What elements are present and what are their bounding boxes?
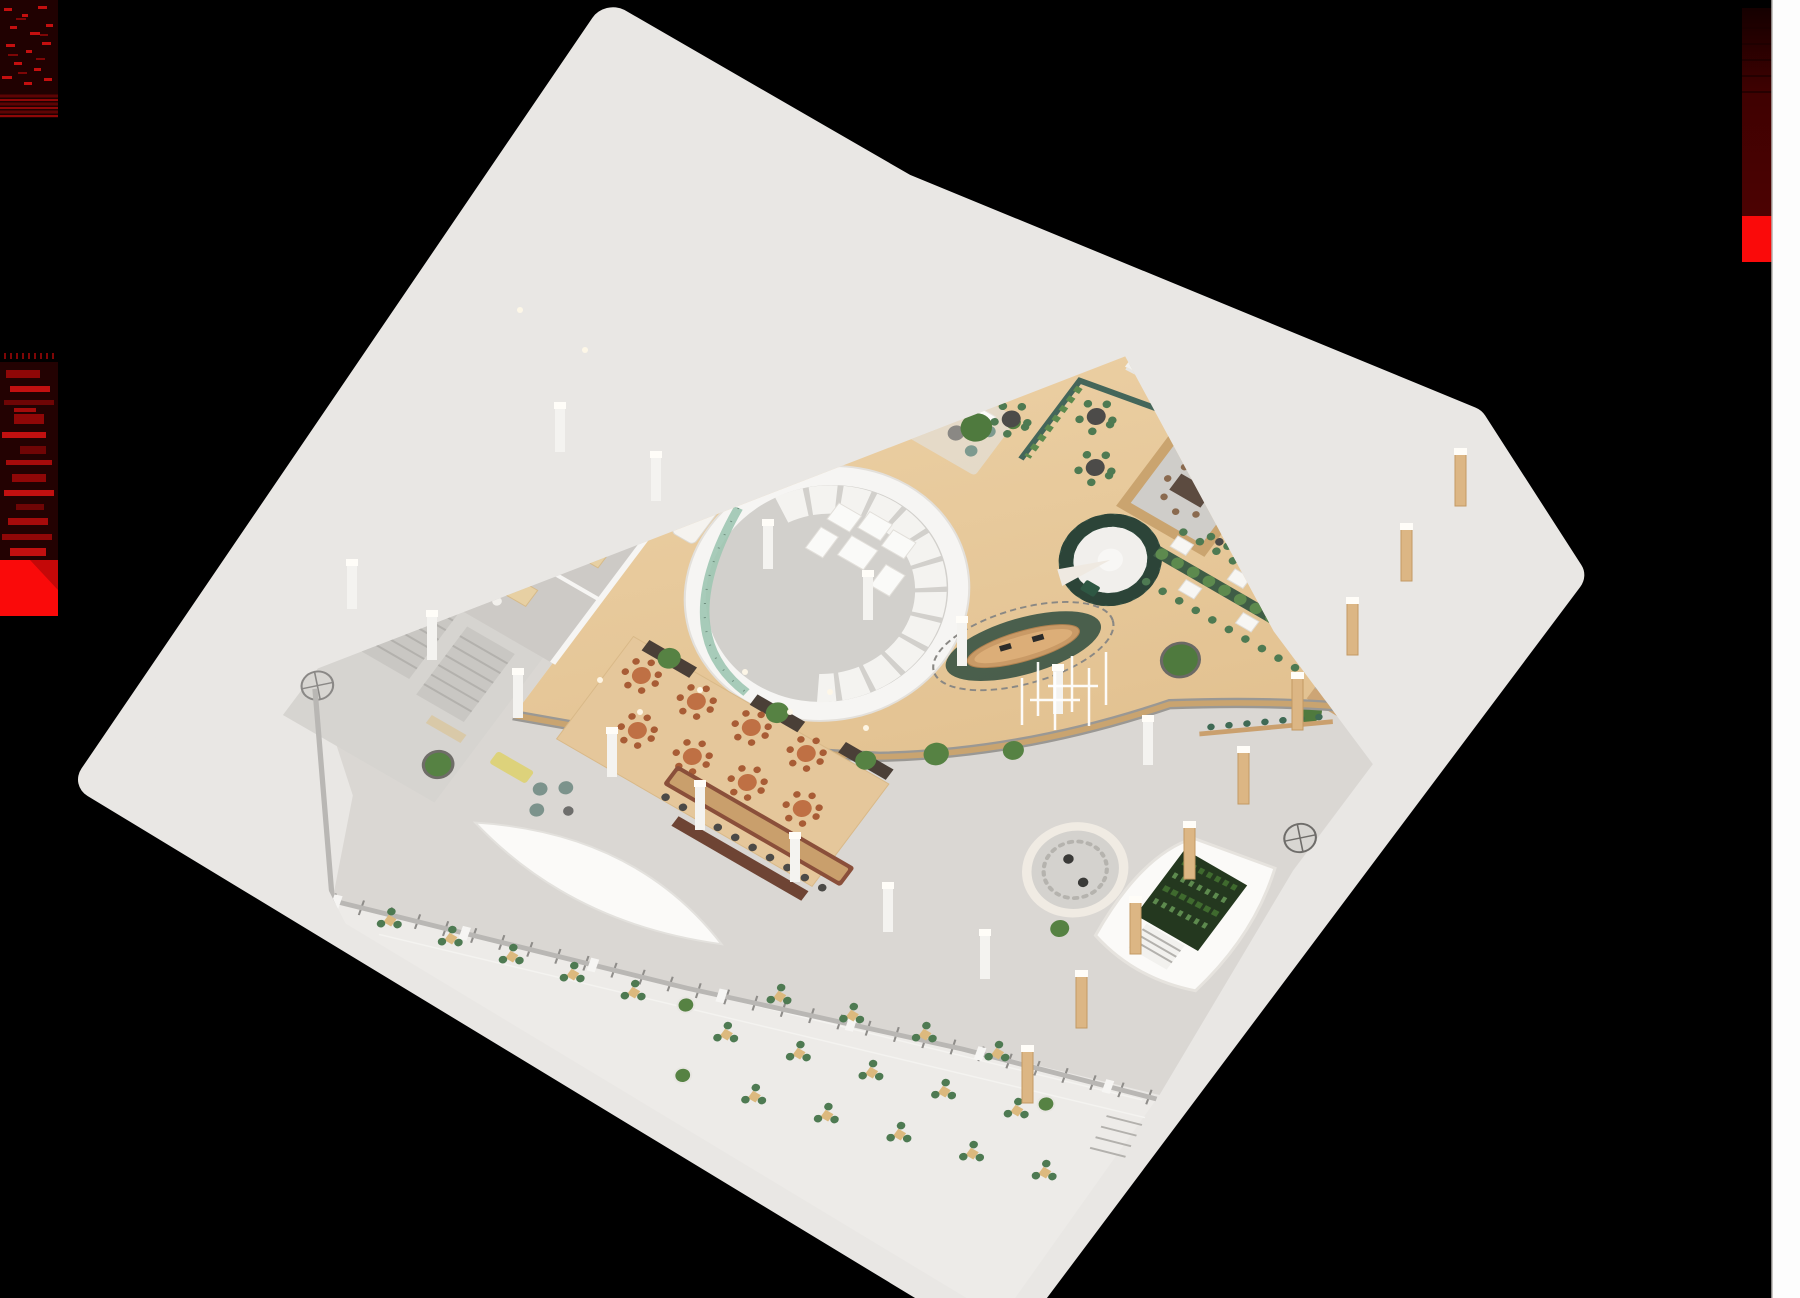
floorplan-render: Isometric 3D architectural rendering of …: [0, 0, 1800, 1298]
right-red-column: [1742, 8, 1772, 216]
left-red-thumbnail: [0, 356, 58, 616]
top-left-glitch: [0, 0, 58, 118]
right-red-block: [1742, 216, 1772, 262]
right-white-strip: [1772, 0, 1800, 1298]
render-canvas: Isometric 3D architectural rendering of …: [0, 0, 1800, 1298]
